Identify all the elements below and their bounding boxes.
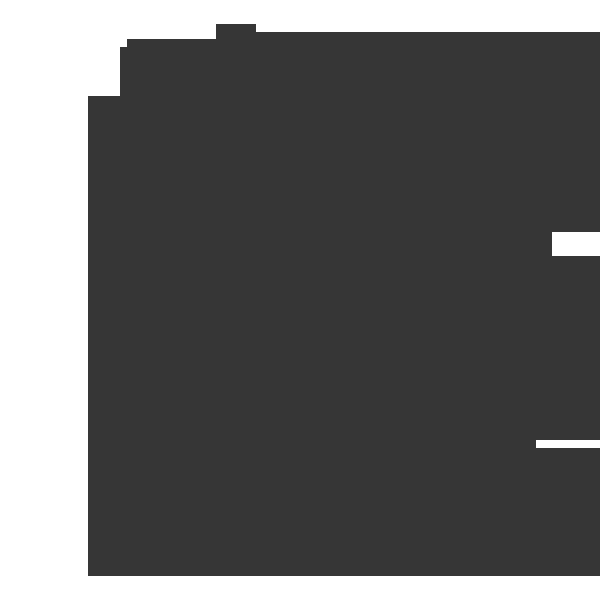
silhouette-column bbox=[216, 24, 256, 576]
cutout-notch bbox=[536, 440, 600, 448]
silhouette-column bbox=[120, 47, 127, 576]
screenshot-canvas bbox=[0, 0, 600, 600]
silhouette-column bbox=[88, 96, 120, 576]
silhouette-column bbox=[256, 32, 600, 576]
silhouette-column bbox=[127, 39, 216, 576]
silhouette-layer bbox=[0, 0, 600, 600]
cutout-notch bbox=[552, 232, 600, 256]
